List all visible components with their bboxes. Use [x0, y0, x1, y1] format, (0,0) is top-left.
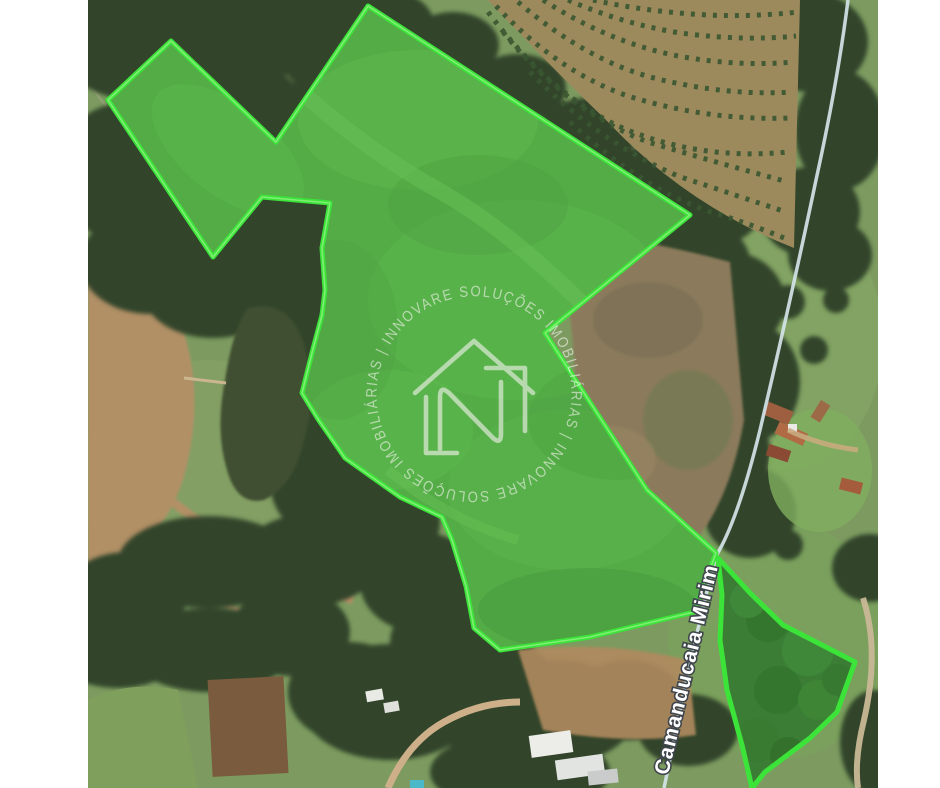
listing-aerial-page: { "map": { "road_label": "Camanducaia Mi… — [0, 0, 940, 788]
planted-field — [208, 676, 289, 777]
satellite-canvas: Camanducaia Mirim INNOVARE SOLUÇÕES IMOB… — [88, 0, 878, 788]
satellite-image[interactable]: Camanducaia Mirim INNOVARE SOLUÇÕES IMOB… — [88, 0, 878, 788]
